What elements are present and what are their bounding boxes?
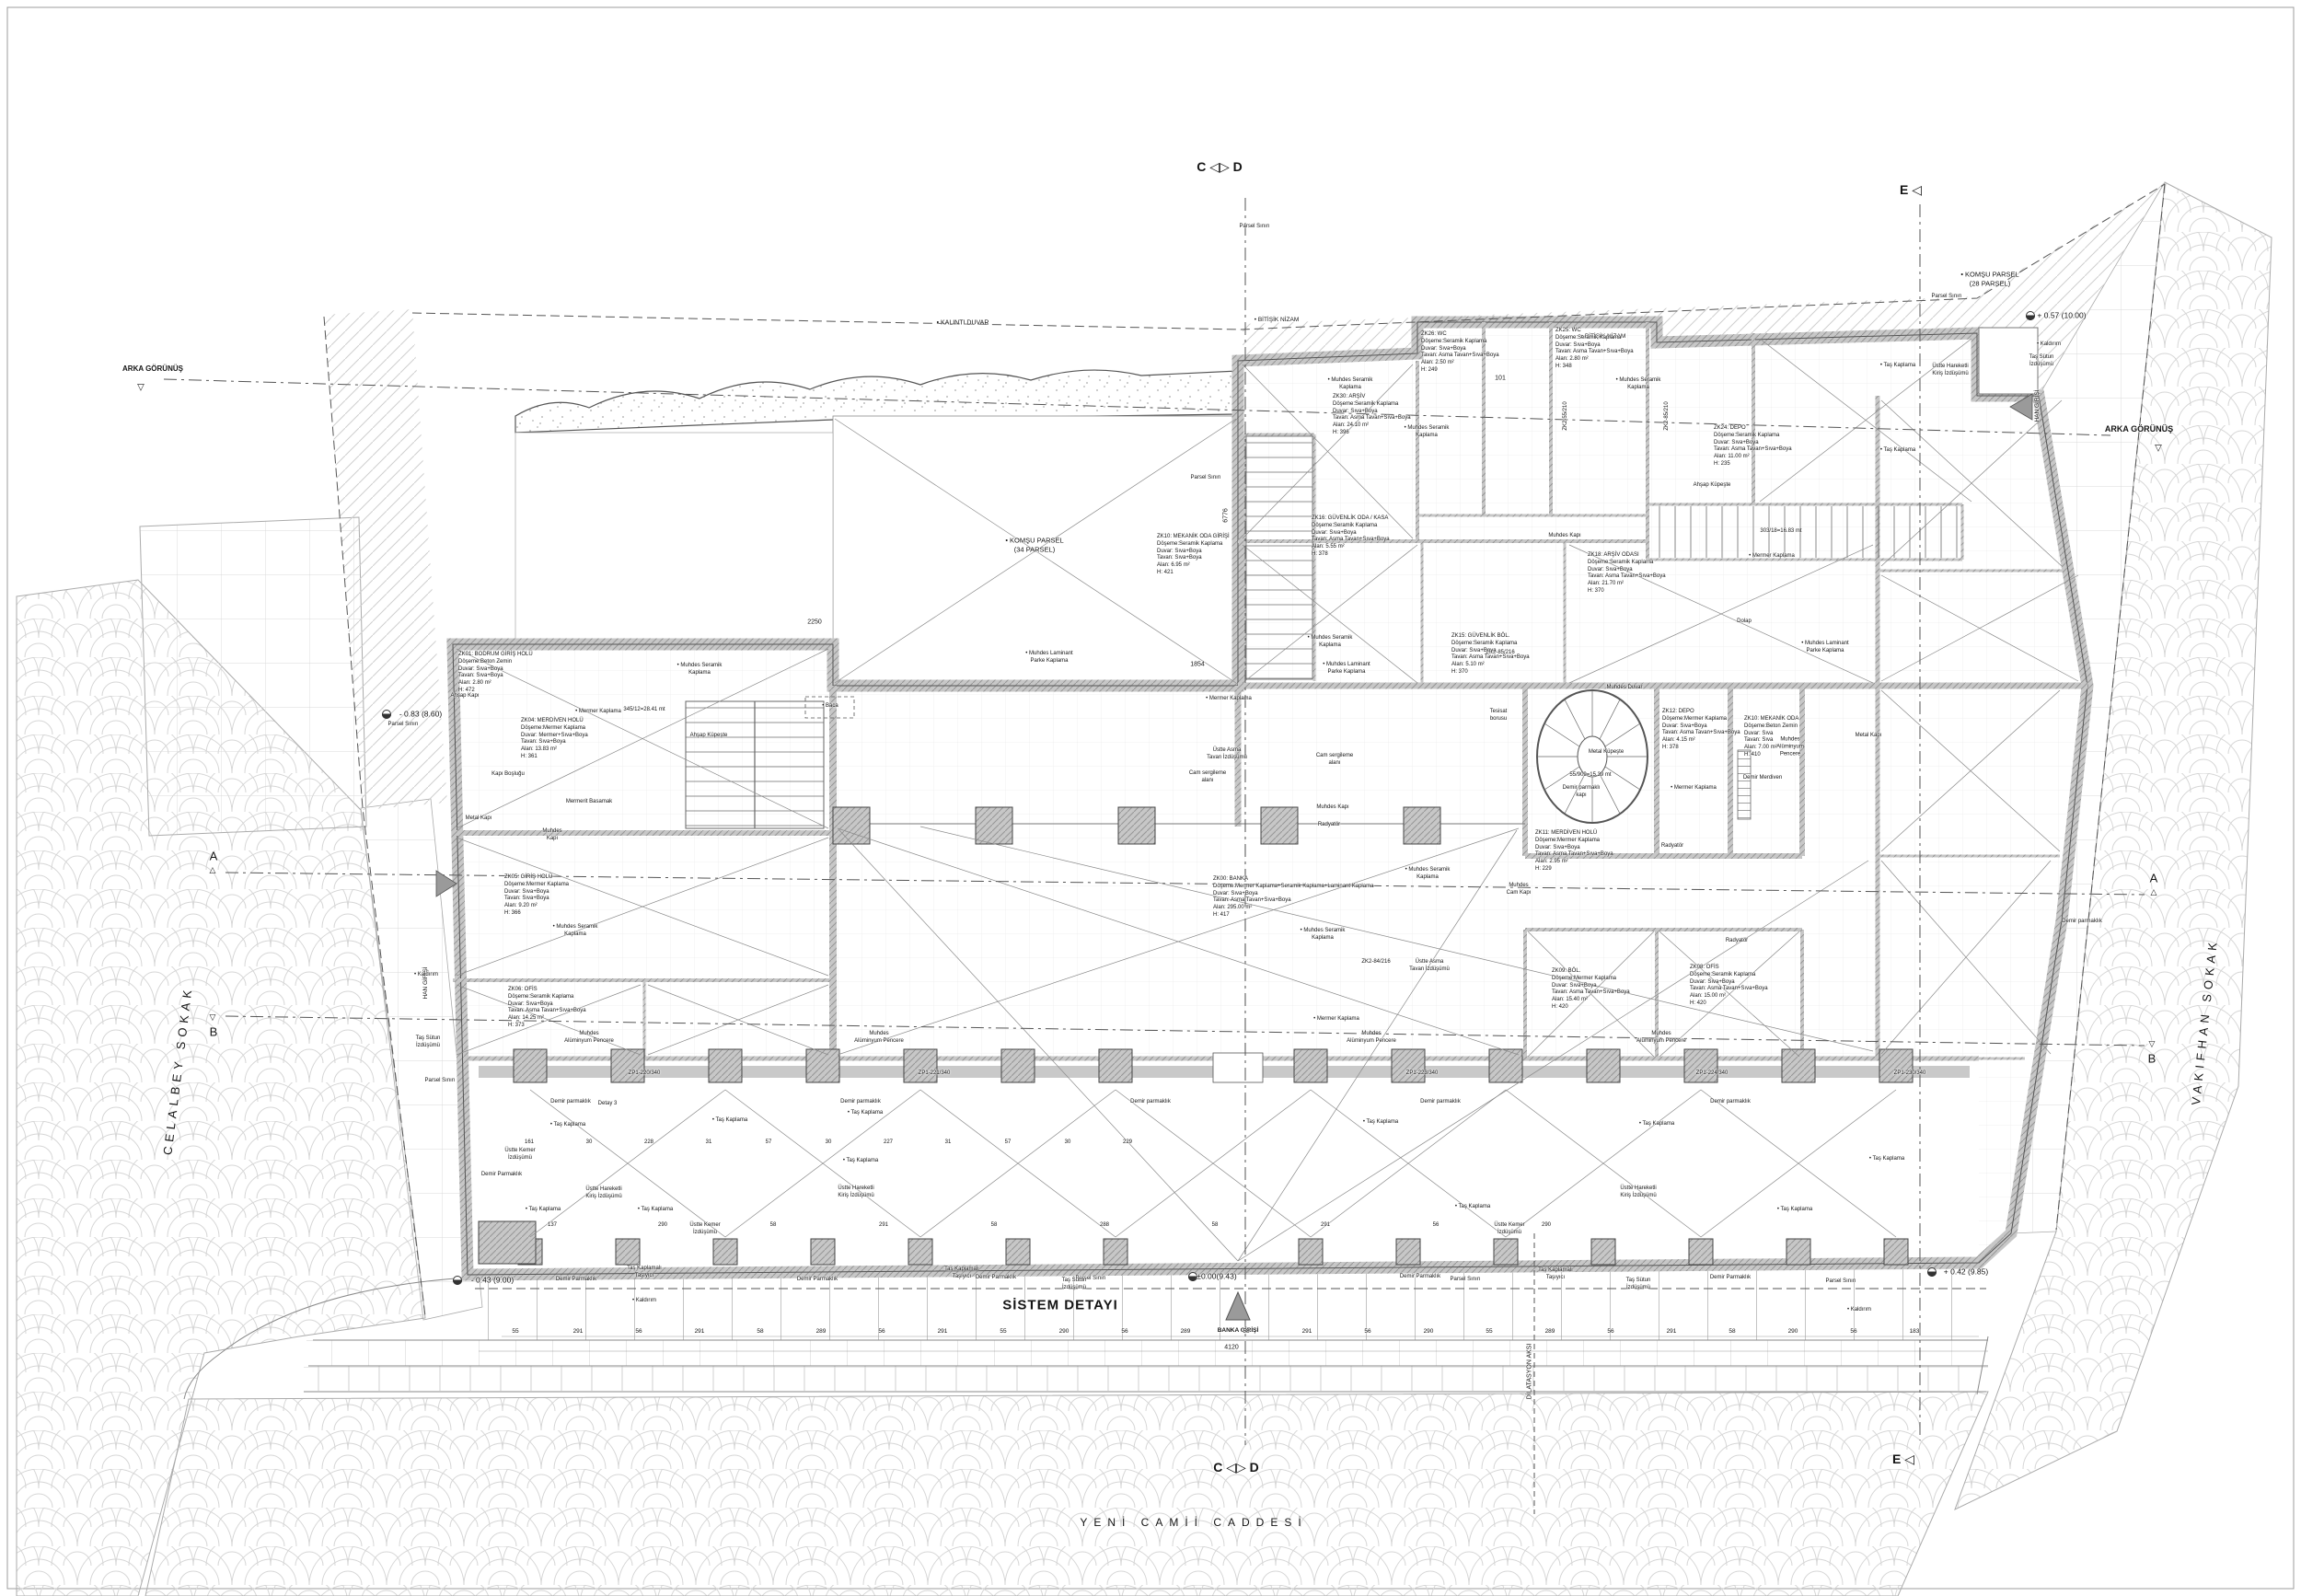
annotation-label: 55 <box>512 1328 518 1336</box>
annotation-label: Kapı Boşluğu <box>491 771 525 779</box>
annotation-label: Muhdes Cam Kapı <box>1507 883 1532 897</box>
annotation-label: • Mermer Kaplama <box>1671 785 1717 792</box>
annotation-label: 291 <box>573 1328 584 1336</box>
annotation-label: • Taş Kaplama <box>550 1122 585 1129</box>
elevation-marker: - 0.43 (9.00) <box>471 1275 514 1285</box>
annotation-label: • Kaldırım <box>632 1298 656 1305</box>
annotation-label: 290 <box>1788 1328 1798 1336</box>
annotation-label: 31 <box>945 1139 952 1147</box>
annotation-label: Ahşap Küpeşte <box>1694 482 1731 490</box>
annotation-label: Üstte Kemer İzdüşümü <box>1494 1222 1524 1237</box>
annotation-label: 56 <box>1850 1328 1856 1336</box>
annotation-label: • Muhdes Seramik Kaplama <box>1616 377 1661 392</box>
annotation-label: Üstte Hareketli Kiriş İzdüşümü <box>585 1186 621 1201</box>
annotation-label: 58 <box>757 1328 763 1336</box>
annotation-label: Demir Merdiven <box>1743 775 1782 782</box>
room-label-zk09: ZK09: BÖL. Döşeme:Mermer Kaplama Duvar: … <box>1552 968 1630 1012</box>
room-label-zk12: ZK12: DEPO Döşeme:Mermer Kaplama Duvar: … <box>1662 709 1740 752</box>
annotation-label: • Taş Kaplama <box>843 1158 878 1165</box>
annotation-label: 30 <box>586 1139 593 1147</box>
annotation-label: • Muhdes Seramik Kaplama <box>1328 377 1373 392</box>
annotation-label: ZP1-224/340 <box>1696 1070 1729 1078</box>
annotation-label: Cam sergileme alanı <box>1189 770 1226 785</box>
sistem-detayi-title: SİSTEM DETAYI <box>1002 1296 1118 1314</box>
room-label-zk30: ZK30: ARŞİV Döşeme:Seramik Kaplama Duvar… <box>1333 394 1411 437</box>
annotation-label: 56 <box>1433 1222 1440 1230</box>
annotation-label: Radyatör <box>1318 822 1340 829</box>
annotation-label: Demir parmaklık <box>550 1099 591 1106</box>
annotation-label: Demir Parmaklık <box>1710 1275 1751 1282</box>
annotation-label: • Taş Kaplama <box>526 1207 561 1214</box>
annotation-label: 291 <box>938 1328 948 1336</box>
annotation-label: 345/12=28.41 mt <box>623 707 665 714</box>
elevation-marker: + 0.57 (10.00) <box>2037 310 2086 320</box>
han-girisi-right: HAN GİRİŞİ <box>2034 389 2041 422</box>
annotation-label: • Muhdes Laminant Parke Kaplama <box>1801 641 1848 655</box>
annotation-label: Demir parmaklık <box>1130 1099 1171 1106</box>
annotation-label: • Taş Kaplama <box>848 1110 883 1117</box>
annotation-label: 303/18=16.83 mt <box>1760 528 1801 536</box>
room-label-zk06: ZK06: OFİS Döşeme:Seramik Kaplama Duvar:… <box>508 987 586 1030</box>
annotation-label: Demir Parmaklık <box>556 1277 596 1284</box>
annotation-label: Taş Kaplamalı Taşıyıcı <box>627 1266 662 1280</box>
annotation-label: Demir parmaklık <box>2062 919 2102 926</box>
annotation-label: Parsel Sınırı <box>1450 1277 1480 1284</box>
section-marker-cd-top: C ◁▷ D <box>1197 158 1243 175</box>
annotation-label: • Mermer Kaplama <box>1749 553 1795 561</box>
annotation-label: Muhdes Alüminyum Pencere <box>564 1031 614 1046</box>
annotation-label: • Kaldırım <box>1847 1307 1871 1314</box>
section-marker-cd-bottom: C ◁▷ D <box>1213 1459 1259 1475</box>
annotation-label: Detay 3 <box>598 1101 618 1108</box>
annotation-label: 55/909=15.39 mt <box>1569 772 1611 780</box>
annotation-label: Metal Kapı <box>466 815 492 823</box>
annotation-label: Demir Parmaklık <box>976 1275 1016 1282</box>
annotation-label: Tesisat borusu <box>1490 709 1508 723</box>
elevation-marker: - 0.83 (8.60) <box>399 709 442 719</box>
section-marker-a-left: A <box>210 850 218 865</box>
annotation-label: 289 <box>1545 1328 1555 1336</box>
annotation-label: • KOMŞU PARSEL (28 PARSEL) <box>1960 270 2018 288</box>
annotation-label: Muhdes Kapı <box>1316 804 1348 812</box>
annotation-label: 291 <box>695 1328 705 1336</box>
banka-girisi: BANKA GİRİŞİ <box>1218 1327 1259 1335</box>
annotation-label: 30 <box>826 1139 832 1147</box>
annotation-label: Üstte Kemer İzdüşümü <box>504 1148 535 1162</box>
annotation-label: • KOMŞU PARSEL (34 PARSEL) <box>1005 536 1063 554</box>
annotation-label: • Taş Kaplama <box>1363 1119 1398 1127</box>
annotation-label: Taş Kaplamalı Taşıyıcı <box>944 1266 979 1281</box>
section-marker-e-top: E ◁ <box>1900 181 1922 198</box>
annotation-label: 290 <box>1424 1328 1434 1336</box>
annotation-label: Parsel Sınırı <box>387 722 418 729</box>
annotation-label: 57 <box>1005 1139 1012 1147</box>
annotation-label: • Muhdes Laminant Parke Kaplama <box>1323 662 1370 677</box>
room-label-zk10: ZK10: MEKANİK ODA Döşeme:Beton Zemin Duv… <box>1744 716 1798 759</box>
annotation-label: Ahşap Küpeşte <box>690 733 728 740</box>
annotation-label: • Muhdes Seramik Kaplama <box>1301 928 1346 943</box>
annotation-label: Üstte Hareketli Kiriş İzdüşümü <box>838 1185 873 1200</box>
room-label-zk16: ZK16: GÜVENLİK ODA / KASA Döşeme:Seramik… <box>1312 515 1390 559</box>
annotation-label: 58 <box>991 1222 998 1230</box>
annotation-label: Radyatör <box>1726 938 1748 945</box>
annotation-label: 31 <box>706 1139 712 1147</box>
annotation-label: Parsel Sınırı <box>1825 1278 1856 1286</box>
arka-gorunus-left: ARKA GÖRÜNÜŞ <box>122 364 183 374</box>
annotation-label: Demir Parmaklık <box>1400 1274 1440 1281</box>
room-label-zk01: ZK01: BODRUM GİRİŞ HOLÜ Döşeme:Beton Zem… <box>458 652 533 695</box>
room-label-zk18: ZK18: ARŞİV ODASI Döşeme:Seramik Kaplama… <box>1588 552 1666 596</box>
annotation-label: Parsel Sınırı <box>424 1078 455 1085</box>
annotation-label: Demir Parmaklık <box>797 1277 838 1284</box>
annotation-label: 58 <box>1212 1222 1219 1230</box>
annotation-label: Mermerit Basamak <box>566 799 612 806</box>
annotation-label: • Muhdes Seramik Kaplama <box>1308 635 1353 650</box>
annotation-label: Taş Sütun İzdüşümü <box>1062 1278 1087 1292</box>
annotation-label: ▽ <box>137 382 145 394</box>
annotation-label: • Muhdes Seramik Kaplama <box>553 924 598 939</box>
annotation-label: ZK2-85/210 <box>1664 401 1671 430</box>
room-label-zk24: ZK24: DEPO Döşeme:Seramik Kaplama Duvar:… <box>1714 425 1792 468</box>
annotation-label: Metal Kapı <box>1856 733 1882 740</box>
annotation-label: Üstte Asma Tavan İzdüşümü <box>1207 747 1247 762</box>
annotation-label: ▽ <box>2149 1039 2156 1050</box>
annotation-label: ZK2-55/210 <box>1563 401 1570 430</box>
room-label-zk08: ZK08: OFİS Döşeme:Seramik Kaplama Duvar:… <box>1690 965 1768 1008</box>
annotation-label: 290 <box>1542 1222 1551 1230</box>
annotation-label: Demir parmaklık <box>1710 1099 1751 1106</box>
annotation-label: Üstte Hareketli Kiriş İzdüşümü <box>1620 1185 1656 1200</box>
street-name-vakifhan: VAKIFHAN SOKAK <box>2189 937 2222 1105</box>
annotation-label: Muhdes Alüminyum Pencere <box>1347 1031 1396 1046</box>
annotation-label: Muhdes Kapı <box>542 828 561 843</box>
annotation-label: Muhdes Kapı <box>1548 533 1580 540</box>
annotation-label: • Muhdes Seramik Kaplama <box>1405 867 1451 882</box>
annotation-label: Parsel Sınırı <box>1931 294 1961 301</box>
annotation-label: Taş Sütun İzdüşümü <box>2029 354 2054 369</box>
annotation-label: 228 <box>644 1139 653 1147</box>
annotation-label: 291 <box>1302 1328 1312 1336</box>
annotation-label: ▽ <box>210 1012 216 1024</box>
annotation-label: ZP1-220/340 <box>629 1070 661 1078</box>
annotation-label: ZP1-221/340 <box>919 1070 951 1078</box>
annotation-label: • Muhdes Seramik Kaplama <box>1405 425 1450 440</box>
annotation-label: 30 <box>1065 1139 1071 1147</box>
annotation-label: 56 <box>1121 1328 1127 1336</box>
annotation-label: Demir parmaklı kapı <box>1563 785 1601 800</box>
annotation-label: 58 <box>1243 1328 1249 1336</box>
elevation-marker: ±0.00(9.43) <box>1197 1271 1236 1281</box>
annotation-label: Parsel Sınırı <box>1239 224 1269 231</box>
annotation-label: 290 <box>658 1222 667 1230</box>
annotation-label: • Mermer Kaplama <box>1313 1016 1359 1024</box>
annotation-label: 291 <box>1321 1222 1330 1230</box>
annotation-label: ZP1-230/340 <box>1894 1070 1926 1078</box>
room-label-zk15: ZK15: GÜVENLİK BÖL. Döşeme:Seramik Kapla… <box>1451 633 1530 677</box>
street-name-celalbey: CELALBEY SOKAK <box>160 985 196 1156</box>
annotation-label: Muhdes Duvar <box>1606 685 1642 692</box>
room-label-zk11: ZK11: MERDİVEN HOLÜ Döşeme:Mermer Kaplam… <box>1535 830 1613 873</box>
annotation-label: Taş Sütun İzdüşümü <box>416 1035 441 1050</box>
annotation-label: • Taş Kaplama <box>1777 1207 1812 1214</box>
arka-gorunus-right: ARKA GÖRÜNÜŞ <box>2105 424 2173 435</box>
annotation-label: Demir Parmaklık <box>481 1172 522 1179</box>
annotation-label: • BİTİŞİK NİZAM <box>1255 317 1300 324</box>
annotation-label: Taş Sütun İzdüşümü <box>1626 1278 1651 1292</box>
annotation-label: 290 <box>1059 1328 1070 1336</box>
street-name-yeni-camii: YENİ CAMİİ CADDESİ <box>1080 1516 1307 1531</box>
annotation-label: Demir parmaklık <box>1420 1099 1461 1106</box>
annotation-label: Üstte Asma Tavan İzdüşümü <box>1409 959 1450 974</box>
annotation-label: Parsel Sınırı <box>1190 475 1220 482</box>
annotation-label: Taş Kaplamalı Taşıyıcı <box>1538 1267 1573 1282</box>
section-marker-b-right: B <box>2148 1052 2156 1068</box>
annotation-label: 229 <box>1123 1139 1132 1147</box>
annotation-label: • Mermer Kaplama <box>1206 696 1252 703</box>
annotation-label: • Kaldırım <box>2037 341 2061 349</box>
dilatasyon-aksi: DİLATASYON AKSI <box>1525 1344 1533 1400</box>
annotation-label: 101 <box>1495 374 1506 382</box>
annotation-layer: CELALBEY SOKAKVAKIFHAN SOKAKYENİ CAMİİ C… <box>0 0 2301 1596</box>
annotation-label: 56 <box>1607 1328 1613 1336</box>
annotation-label: 291 <box>1667 1328 1677 1336</box>
annotation-label: Metal Küpeşte <box>1589 749 1624 757</box>
annotation-label: 183 <box>1910 1328 1920 1336</box>
section-marker-e-bottom: E ◁ <box>1892 1451 1914 1467</box>
annotation-label: 56 <box>878 1328 885 1336</box>
annotation-label: 288 <box>1100 1222 1109 1230</box>
section-marker-a-right: A <box>2150 872 2158 887</box>
room-label-zk10-giris: ZK10: MEKANİK ODA GİRİŞİ Döşeme:Seramik … <box>1157 534 1230 577</box>
annotation-label: • Kaldırım <box>414 972 438 979</box>
annotation-label: Cam sergileme alanı <box>1316 753 1353 768</box>
annotation-label: 56 <box>635 1328 642 1336</box>
annotation-label: Üstte Hareketli Kiriş İzdüşümü <box>1932 364 1968 378</box>
annotation-label: 55 <box>1486 1328 1492 1336</box>
annotation-label: Radyatör <box>1661 843 1683 850</box>
room-label-zk00: ZK00: BANKA Döşeme:Mermer Kaplama+Serami… <box>1213 876 1373 919</box>
annotation-label: Muhdes Alüminyum Pencere <box>854 1031 904 1046</box>
annotation-label: • KALINTI DUVAR <box>937 318 989 327</box>
annotation-label: 289 <box>816 1328 827 1336</box>
room-label-zk25: ZK25: WC Döşeme:Seramik Kaplama Duvar: S… <box>1555 328 1634 371</box>
annotation-label: Muhdes Alüminyum Pencere <box>1636 1031 1686 1046</box>
annotation-label: 137 <box>548 1222 557 1230</box>
annotation-label: 289 <box>1181 1328 1191 1336</box>
room-label-zk26: ZK26: WC Döşeme:Seramik Kaplama Duvar: S… <box>1421 331 1499 375</box>
annotation-label: 57 <box>766 1139 772 1147</box>
annotation-label: • Taş Kaplama <box>712 1117 747 1125</box>
annotation-label: Üstte Kemer İzdüşümü <box>689 1222 720 1237</box>
annotation-label: ZK2-84/216 <box>1361 959 1390 966</box>
annotation-label: • Taş Kaplama <box>1455 1204 1490 1211</box>
annotation-label: 1854 <box>1190 660 1205 668</box>
section-marker-b-left: B <box>210 1025 218 1041</box>
annotation-label: • Muhdes Seramik Kaplama <box>677 663 723 677</box>
annotation-label: 58 <box>1729 1328 1735 1336</box>
annotation-label: 6776 <box>1221 508 1230 523</box>
annotation-label: • Mermer Kaplama <box>575 709 621 716</box>
room-label-zk05: ZK05: GİRİŞ HOLÜ Döşeme:Mermer Kaplama D… <box>504 874 569 918</box>
annotation-label: • Baca <box>822 703 838 711</box>
annotation-label: ▽ <box>2155 443 2162 455</box>
annotation-label: • Taş Kaplama <box>1869 1156 1904 1163</box>
annotation-label: 291 <box>879 1222 888 1230</box>
annotation-label: • Muhdes Laminant Parke Kaplama <box>1025 651 1072 665</box>
elevation-marker: + 0.42 (9.85) <box>1944 1266 1988 1277</box>
annotation-label: △ <box>210 865 216 876</box>
annotation-label: 2250 <box>807 618 822 626</box>
annotation-label: 4120 <box>1224 1343 1239 1351</box>
annotation-label: • Taş Kaplama <box>1639 1121 1674 1128</box>
annotation-label: • Taş Kaplama <box>638 1207 673 1214</box>
annotation-label: • Taş Kaplama <box>1880 363 1915 370</box>
architectural-plan-sheet: CELALBEY SOKAKVAKIFHAN SOKAKYENİ CAMİİ C… <box>0 0 2301 1596</box>
annotation-label: △ <box>2151 887 2157 898</box>
room-label-zk04: ZK04: MERDİVEN HOLÜ Döşeme:Mermer Kaplam… <box>521 718 588 761</box>
annotation-label: ZP1-223/340 <box>1406 1070 1439 1078</box>
annotation-label: Demir parmaklık <box>840 1099 881 1106</box>
annotation-label: Dolap <box>1737 619 1752 626</box>
annotation-label: 58 <box>770 1222 777 1230</box>
annotation-label: • Taş Kaplama <box>1880 447 1915 455</box>
annotation-label: 56 <box>1364 1328 1370 1336</box>
annotation-label: 161 <box>525 1139 534 1147</box>
annotation-label: 227 <box>884 1139 893 1147</box>
annotation-label: 55 <box>1000 1328 1006 1336</box>
